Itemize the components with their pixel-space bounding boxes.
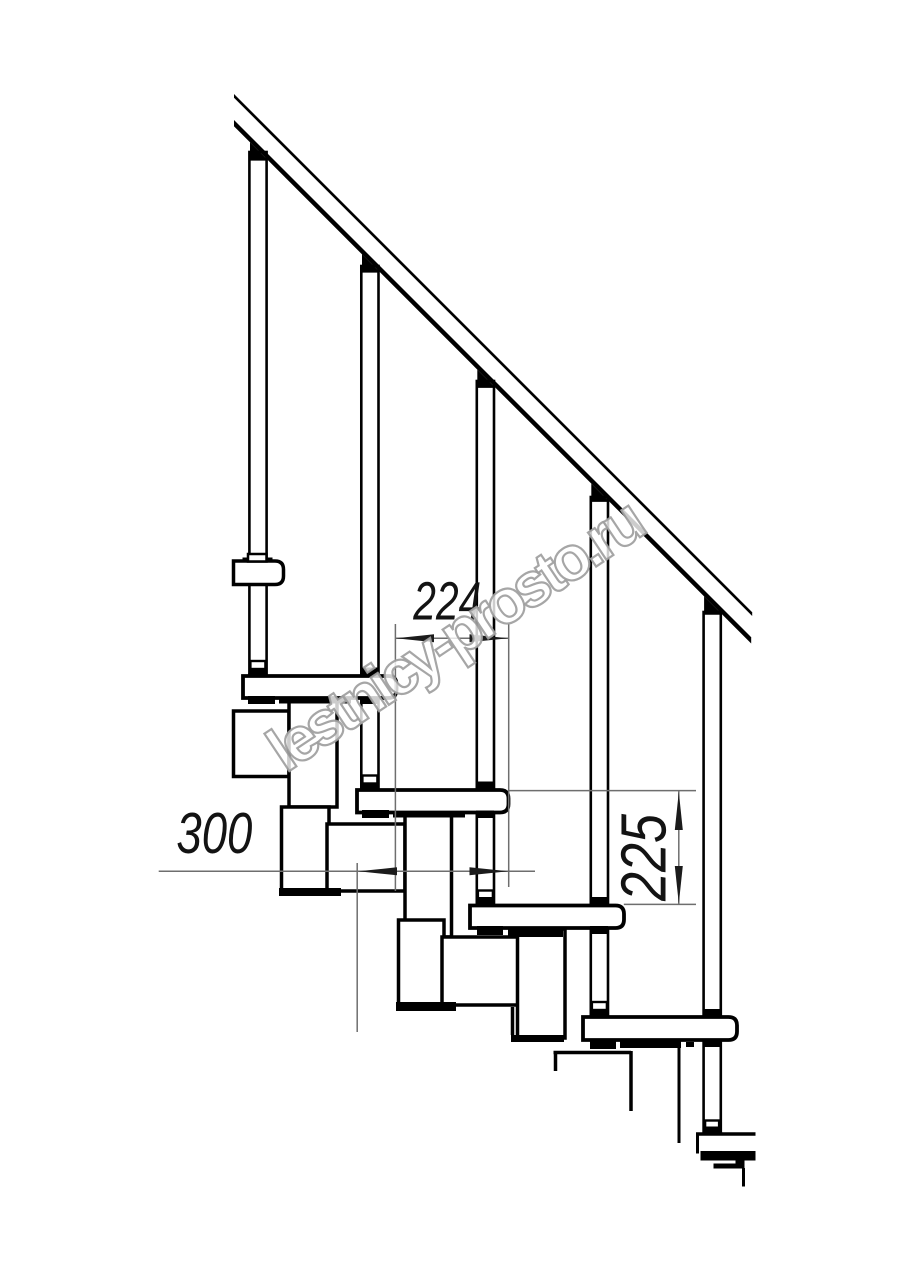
svg-text:300: 300 (176, 801, 252, 866)
svg-text:225: 225 (608, 814, 680, 902)
